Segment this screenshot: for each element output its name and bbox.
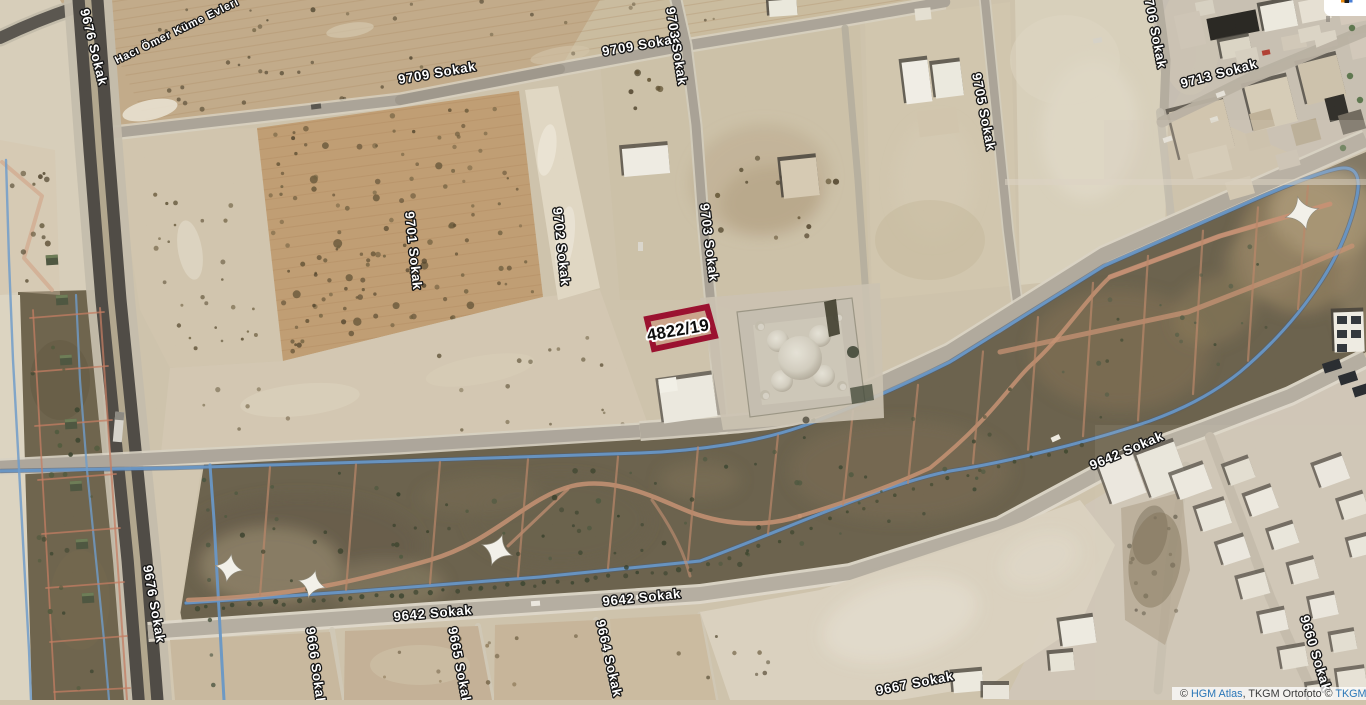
- svg-text:© HGM Atlas, TKGM Ortofoto © T: © HGM Atlas, TKGM Ortofoto © TKGM: [1180, 688, 1366, 700]
